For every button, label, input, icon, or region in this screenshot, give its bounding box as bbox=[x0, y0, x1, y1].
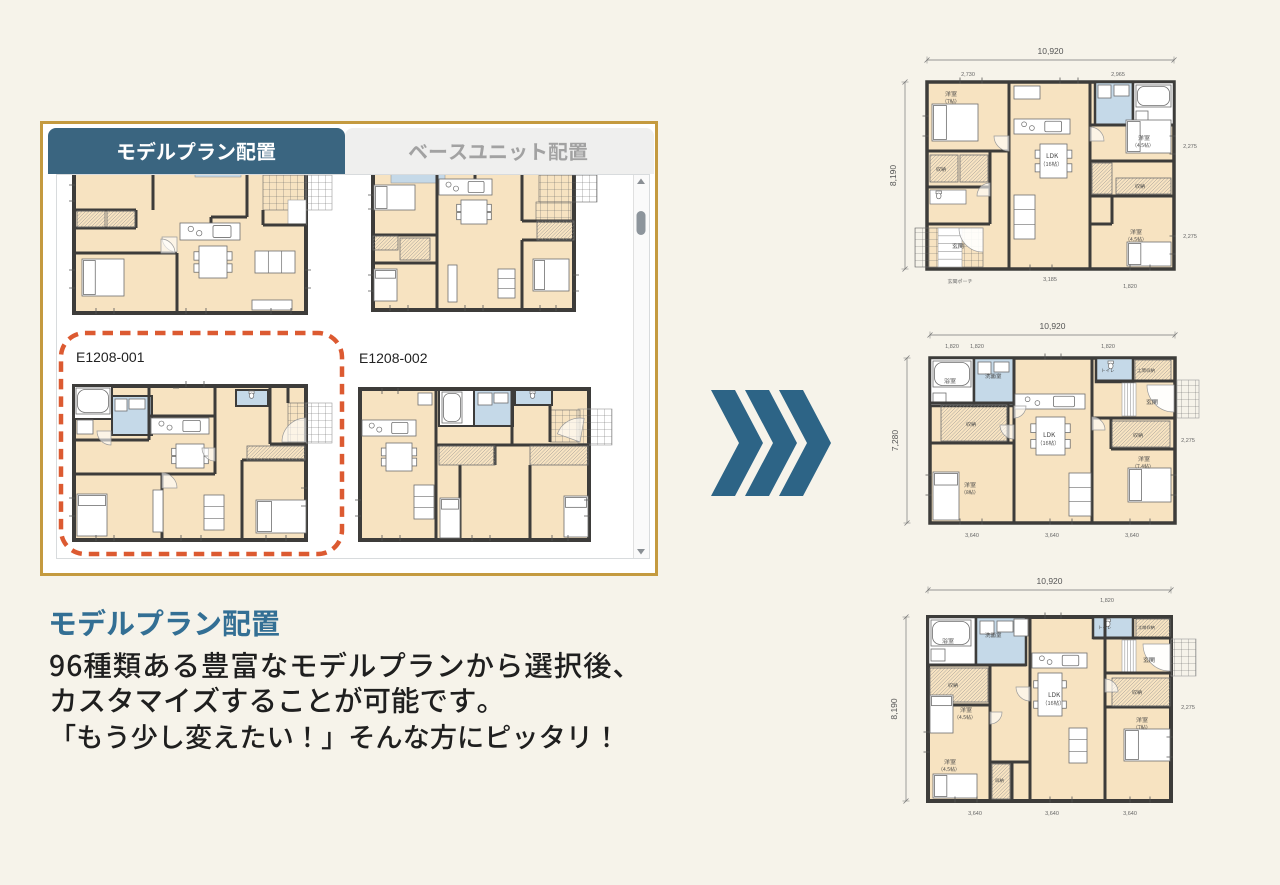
svg-text:2,275: 2,275 bbox=[1183, 144, 1197, 150]
svg-text:10,920: 10,920 bbox=[1040, 321, 1066, 331]
svg-text:2,965: 2,965 bbox=[1111, 72, 1125, 78]
svg-text:3,640: 3,640 bbox=[1045, 811, 1059, 817]
svg-text:2,275: 2,275 bbox=[1181, 438, 1195, 444]
svg-text:2,275: 2,275 bbox=[1181, 705, 1195, 711]
svg-text:1,820: 1,820 bbox=[1101, 344, 1115, 350]
svg-text:8,190: 8,190 bbox=[889, 698, 899, 720]
svg-text:3,640: 3,640 bbox=[1123, 811, 1137, 817]
svg-text:1,820: 1,820 bbox=[970, 344, 984, 350]
svg-text:3,640: 3,640 bbox=[1045, 533, 1059, 539]
svg-text:10,920: 10,920 bbox=[1038, 46, 1064, 56]
svg-text:8,190: 8,190 bbox=[888, 165, 898, 187]
svg-text:3,640: 3,640 bbox=[965, 533, 979, 539]
svg-text:10,920: 10,920 bbox=[1037, 576, 1063, 586]
svg-text:3,640: 3,640 bbox=[968, 811, 982, 817]
svg-text:3,640: 3,640 bbox=[1125, 533, 1139, 539]
svg-text:2,275: 2,275 bbox=[1183, 234, 1197, 240]
svg-text:1,820: 1,820 bbox=[1123, 284, 1137, 290]
svg-text:3,185: 3,185 bbox=[1043, 277, 1057, 283]
svg-text:1,820: 1,820 bbox=[945, 344, 959, 350]
svg-text:1,820: 1,820 bbox=[1100, 598, 1114, 604]
svg-text:7,280: 7,280 bbox=[890, 430, 900, 452]
svg-text:2,730: 2,730 bbox=[961, 72, 975, 78]
